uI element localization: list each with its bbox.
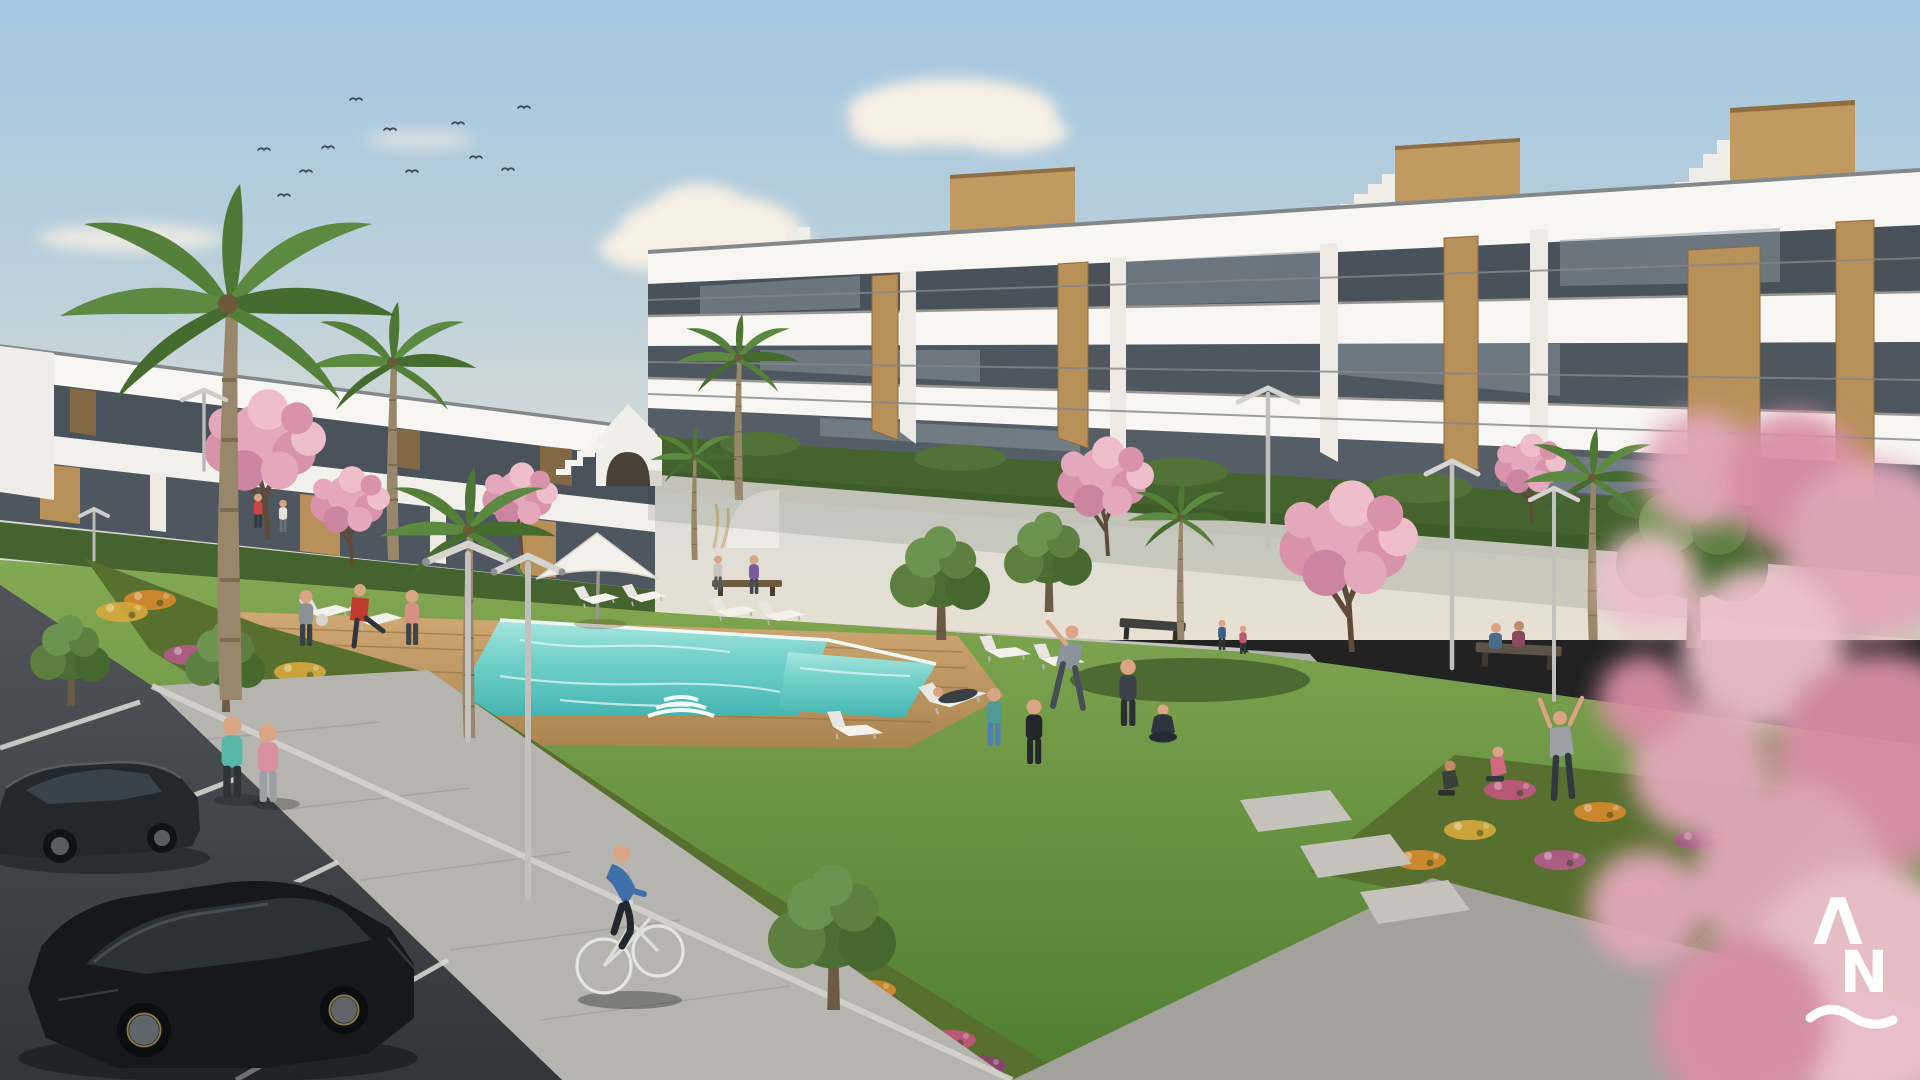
- car-sedan: [0, 762, 210, 874]
- logo-letter-n: N: [1840, 938, 1889, 1006]
- architectural-render-image: Λ N: [0, 0, 1920, 1080]
- person-bg-path-2: [1239, 626, 1246, 654]
- render-scene: Λ N: [0, 0, 1920, 1080]
- person-bg-path-1: [1218, 620, 1226, 650]
- hedge-strip: [1070, 658, 1310, 702]
